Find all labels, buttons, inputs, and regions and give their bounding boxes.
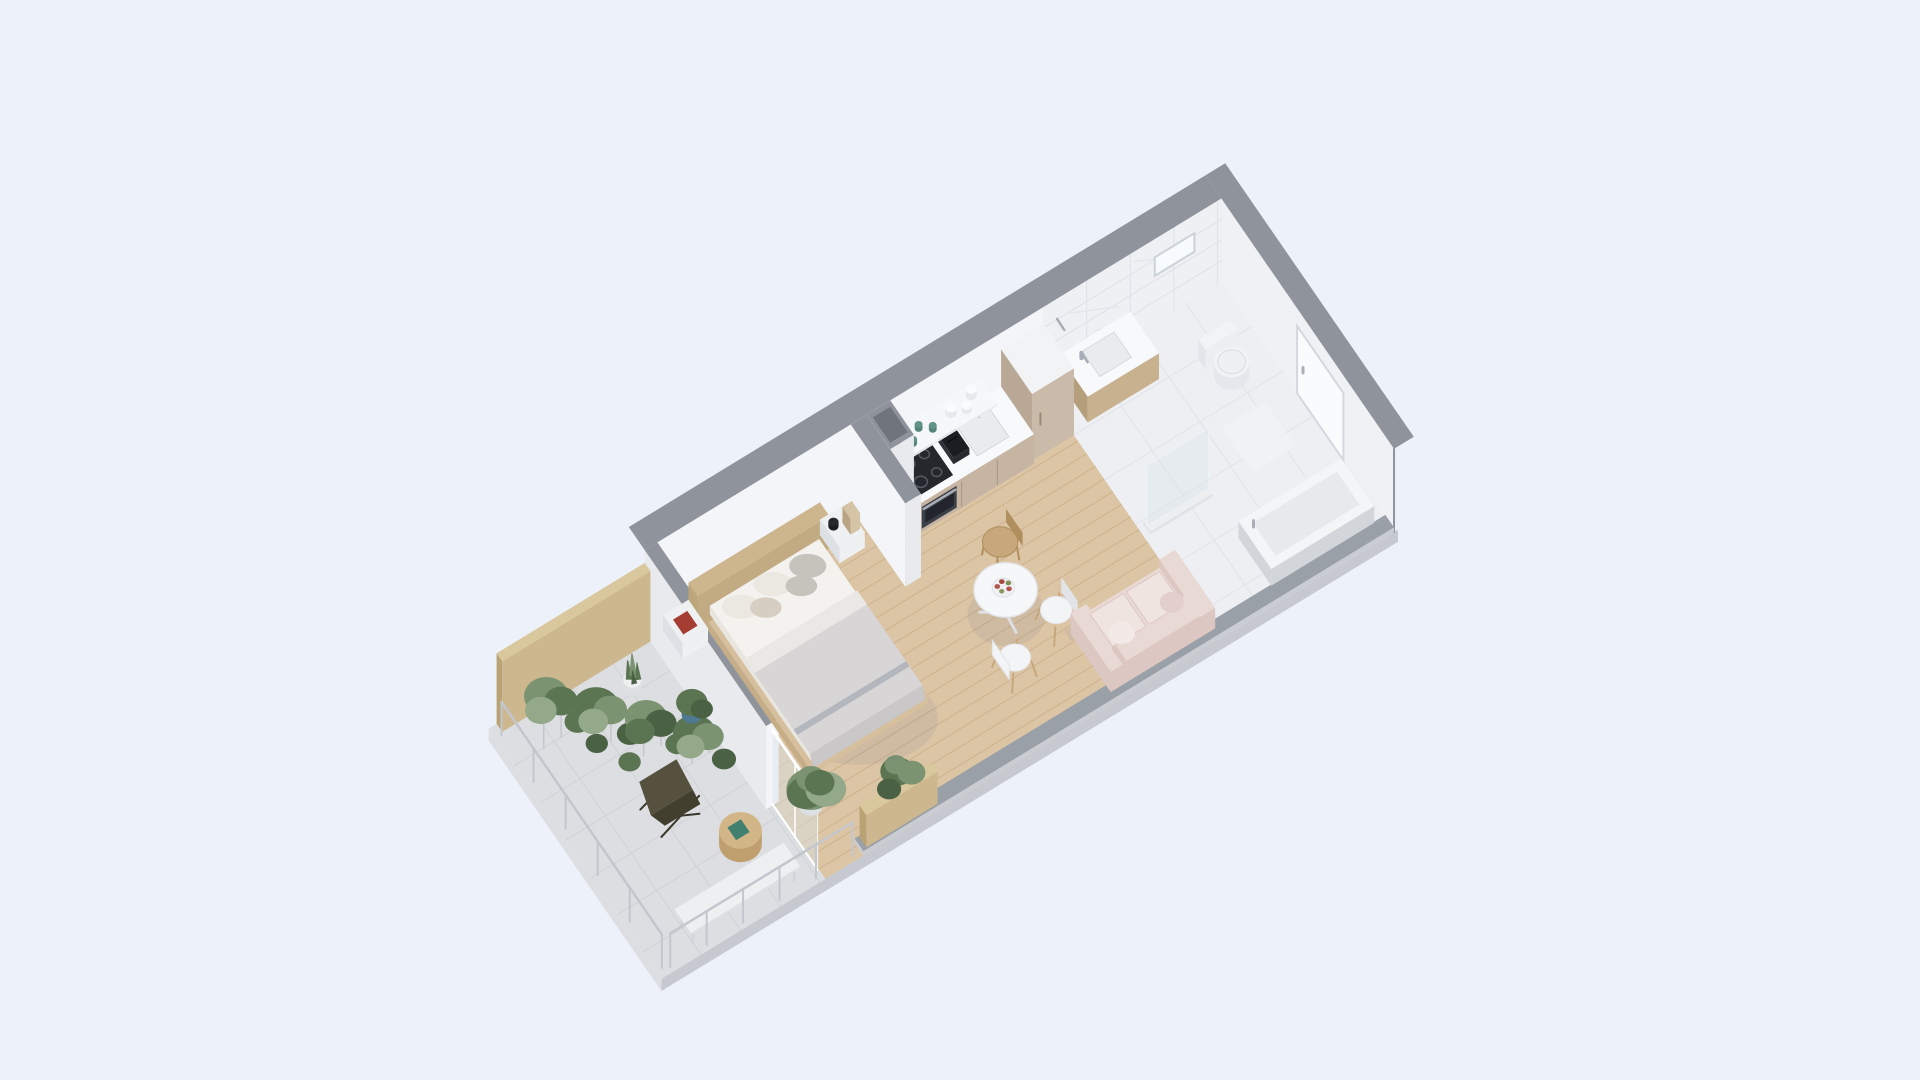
isometric-floorplan (0, 0, 1920, 1080)
floorplan-stage (0, 0, 1920, 1080)
side-table (719, 812, 762, 862)
